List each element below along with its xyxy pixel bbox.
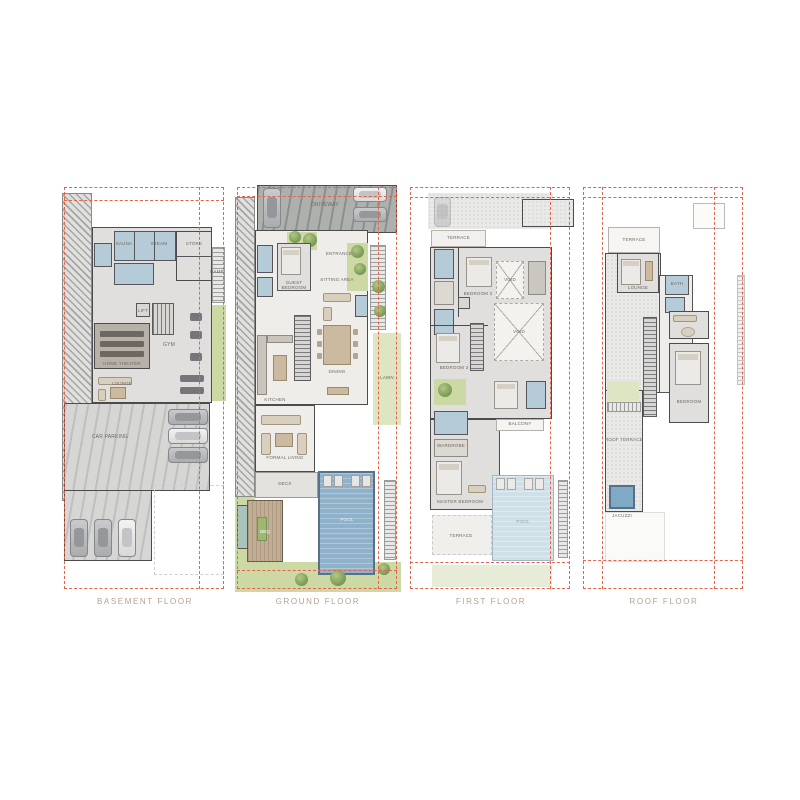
room-label: GUEST BEDROOM — [275, 280, 313, 290]
room-label: POOL — [502, 519, 544, 524]
room-label: HOME THEATER — [94, 361, 150, 366]
plot-boundary — [583, 187, 743, 589]
setback-line — [64, 200, 224, 201]
room-label: BEDROOM 2 — [456, 291, 500, 296]
room-label: VOID — [494, 329, 544, 334]
room-label: DINING — [323, 369, 351, 374]
room-label: BEDROOM 3 — [432, 365, 476, 370]
room-label: LIFT — [132, 308, 154, 313]
basement-floor-plan: SAUNA STEAM STORE LIFT HOME THEATER LOUN… — [62, 185, 228, 592]
plot-boundary — [410, 187, 570, 589]
room-label: BEDROOM — [669, 399, 709, 404]
plot-boundary — [64, 187, 224, 589]
room-label: DRIVEWAY — [287, 203, 363, 209]
room-label: RAMP — [206, 269, 228, 274]
room-label: LOUNGE — [617, 285, 659, 290]
setback-line — [583, 560, 743, 561]
room-label: FORMAL LIVING — [257, 455, 313, 460]
floorplan-sheet: SAUNA STEAM STORE LIFT HOME THEATER LOUN… — [0, 0, 800, 800]
roof-floor-plan: TERRACE LOUNGE BATH BEDROOM ROOF TERRACE… — [581, 185, 747, 592]
room-label: STEAM — [144, 241, 174, 246]
room-label: VOID — [496, 277, 524, 282]
setback-line — [378, 187, 379, 589]
setback-line — [602, 187, 603, 589]
setback-line — [583, 197, 743, 198]
room-label: LOUNGE — [94, 381, 150, 386]
room-label: ENTRANCE — [317, 251, 361, 256]
caption-ground-floor: GROUND FLOOR — [235, 597, 401, 606]
caption-first-floor: FIRST FLOOR — [408, 597, 574, 606]
room-label: JACUZZI — [601, 513, 643, 518]
room-label: BATH — [665, 281, 689, 286]
caption-roof-floor: ROOF FLOOR — [581, 597, 747, 606]
room-label: LAWN — [373, 375, 401, 380]
room-label: SITTING AREA — [315, 277, 359, 282]
room-label: CAR PARKING — [70, 435, 150, 441]
room-label: KITCHEN — [259, 397, 291, 402]
setback-line — [199, 187, 200, 589]
setback-line — [237, 196, 397, 197]
room-label: WARDROBE — [434, 443, 468, 448]
room-label: DECK — [265, 481, 305, 486]
room-label: TERRACE — [431, 235, 486, 240]
setback-line — [550, 187, 551, 589]
setback-line — [410, 562, 570, 563]
room-label: TERRACE — [608, 237, 660, 242]
setback-line — [237, 570, 397, 571]
room-label: MASTER BEDROOM — [432, 499, 488, 504]
room-label: TERRACE — [436, 533, 486, 538]
room-label: SAUNA — [112, 241, 136, 246]
room-label: GYM — [154, 343, 184, 349]
room-label: BBQ — [249, 529, 281, 534]
ground-floor-plan: DRIVEWAY ENTRANCE GUEST BEDROOM SITTING … — [235, 185, 401, 592]
setback-line — [410, 197, 570, 198]
room-label: STORE — [176, 241, 212, 246]
room-label: POOL — [325, 517, 369, 522]
room-label: ROOF TERRACE — [603, 437, 645, 442]
first-floor-plan: TERRACE BEDROOM 2 BEDROOM 3 VOID VOID WA… — [408, 185, 574, 592]
setback-line — [714, 187, 715, 589]
room-label: BALCONY — [496, 421, 544, 426]
caption-basement-floor: BASEMENT FLOOR — [62, 597, 228, 606]
